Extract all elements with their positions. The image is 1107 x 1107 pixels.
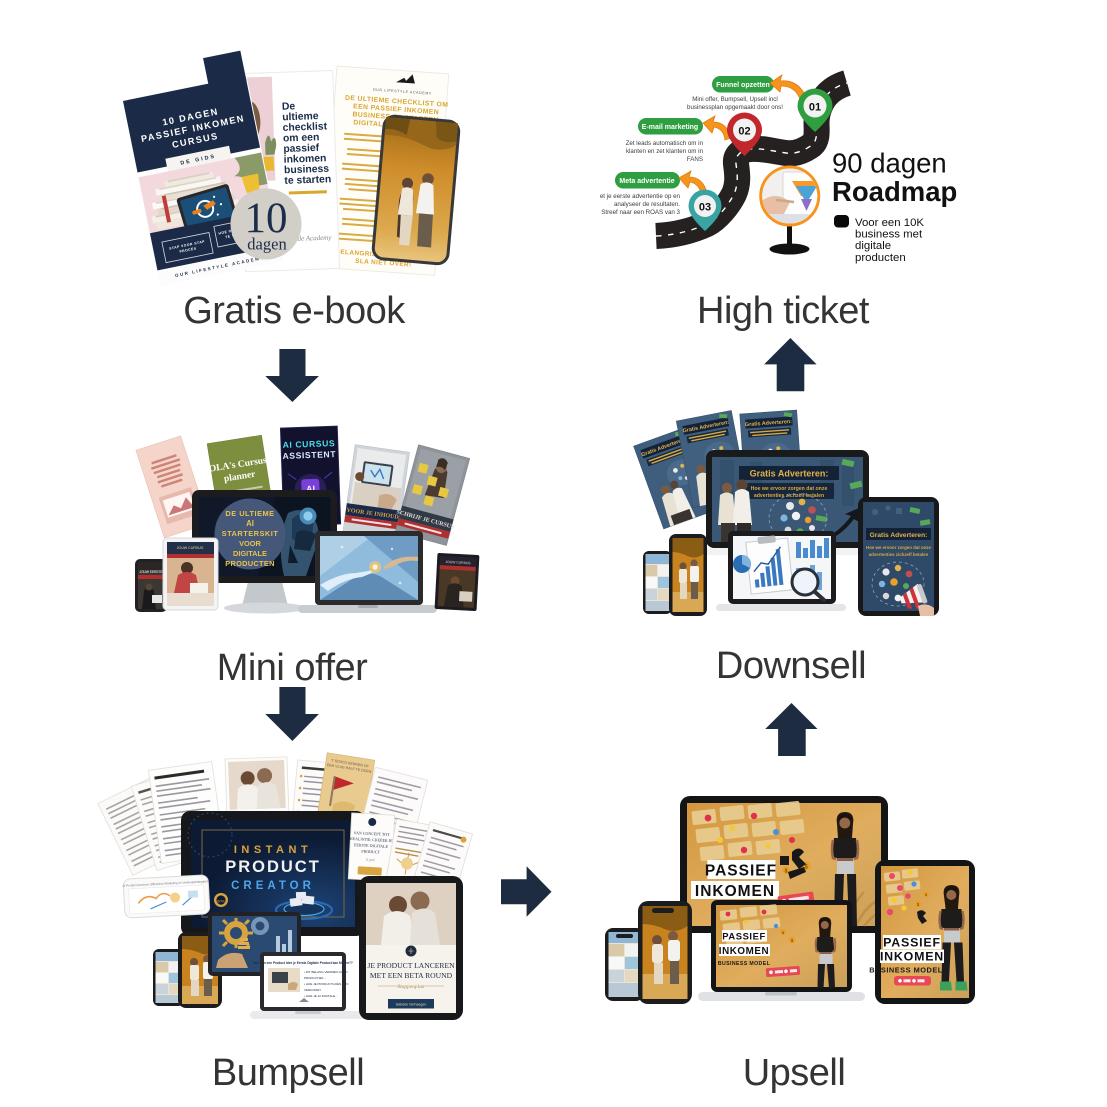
svg-text:digitale: digitale: [855, 240, 891, 252]
svg-text:Zet leads automatisch om in: Zet leads automatisch om in: [626, 140, 704, 147]
svg-text:Mini offer, Bumpsell, Upsell i: Mini offer, Bumpsell, Upsell incl: [692, 96, 778, 103]
svg-text:INKOMEN: INKOMEN: [880, 950, 944, 964]
svg-text:Streef naar een ROAS van 3: Streef naar een ROAS van 3: [601, 209, 680, 216]
svg-text:DE ULTIEME: DE ULTIEME: [225, 509, 274, 518]
svg-text:PRODUCT: PRODUCT: [361, 849, 380, 855]
svg-text:Roadmap: Roadmap: [832, 176, 957, 207]
svg-text:Hoe we ervoor zorgen dat onze: Hoe we ervoor zorgen dat onze: [866, 545, 931, 550]
svg-text:PRODUCT: PRODUCT: [225, 858, 321, 876]
svg-text:DIGITALE: DIGITALE: [233, 549, 267, 558]
svg-text:Hoe Van een Product Idee je Ee: Hoe Van een Product Idee je Eerste Digit…: [253, 961, 353, 965]
svg-text:klanten en zet klanten om in: klanten en zet klanten om in: [626, 148, 704, 155]
svg-text:businessplan opgemaakt door on: businessplan opgemaakt door ons!: [687, 104, 783, 111]
svg-text:Zet je eerste advertentie op e: Zet je eerste advertentie op en: [600, 193, 681, 200]
svg-text:ASSISTENT: ASSISTENT: [282, 449, 336, 461]
svg-text:• HOE JE PRODUCTGOËN KUN: • HOE JE PRODUCTGOËN KUN: [304, 982, 348, 986]
svg-text:PRODUCTIEF...: PRODUCTIEF...: [304, 976, 326, 980]
svg-text:• DIT BELANG VERDIEN GOED: • DIT BELANG VERDIEN GOED: [304, 970, 348, 974]
svg-text:03: 03: [699, 202, 711, 214]
svg-text:E-mail marketing: E-mail marketing: [642, 124, 698, 131]
svg-text:INKOMEN: INKOMEN: [719, 946, 769, 957]
svg-text:60%: 60%: [217, 899, 225, 904]
svg-text:• HOE JE 10 DIGITALE...: • HOE JE 10 DIGITALE...: [304, 994, 338, 998]
svg-text:te starten: te starten: [284, 174, 331, 187]
svg-text:producten: producten: [855, 252, 906, 264]
svg-text:Meta advertentie: Meta advertentie: [619, 178, 674, 185]
svg-text:Gratis Adverteren:: Gratis Adverteren:: [750, 469, 829, 479]
svg-text:MET EEN BETA ROUND: MET EEN BETA ROUND: [370, 971, 453, 980]
svg-text:$: $: [785, 869, 788, 875]
svg-text:JE PRODUCT LANCEREN: JE PRODUCT LANCEREN: [367, 961, 455, 970]
svg-text:CREATOR: CREATOR: [231, 880, 315, 892]
svg-text:PASSIEF: PASSIEF: [883, 936, 941, 950]
svg-text:business met: business met: [855, 229, 923, 241]
svg-text:Hoe we ervoor zorgen dat onze: Hoe we ervoor zorgen dat onze: [751, 486, 828, 492]
svg-text:FANS: FANS: [687, 156, 703, 163]
svg-text:5 juni: 5 juni: [366, 858, 375, 862]
svg-text:Gratis Adverteren:: Gratis Adverteren:: [870, 532, 928, 539]
svg-text:STARTERSKIT: STARTERSKIT: [222, 529, 279, 538]
svg-text:advertenties zichzelf betalen: advertenties zichzelf betalen: [869, 552, 929, 557]
svg-text:INKOMEN: INKOMEN: [695, 883, 775, 900]
svg-text:90 dagen: 90 dagen: [832, 148, 947, 179]
svg-text:de Academy: de Academy: [297, 234, 332, 243]
svg-text:Isabelle Verhaegen: Isabelle Verhaegen: [396, 1003, 427, 1007]
svg-text:dagen: dagen: [247, 235, 286, 254]
svg-text:Stappenplan: Stappenplan: [398, 984, 425, 990]
svg-text:VOOR: VOOR: [239, 539, 261, 548]
svg-text:BUSINESS MODEL: BUSINESS MODEL: [869, 966, 943, 975]
svg-text:PASSIEF: PASSIEF: [705, 863, 777, 880]
svg-text:AI: AI: [246, 519, 254, 528]
svg-text:analyseer de resultaten.: analyseer de resultaten.: [614, 201, 680, 208]
svg-text:BUSINESS MODEL: BUSINESS MODEL: [718, 961, 771, 967]
svg-text:PRODUCTEN: PRODUCTEN: [225, 559, 275, 568]
svg-text:INSTANT: INSTANT: [234, 844, 312, 856]
svg-text:02: 02: [738, 126, 750, 138]
svg-text:Voor een 10K: Voor een 10K: [855, 217, 924, 229]
svg-text:Funnel opzetten: Funnel opzetten: [716, 82, 770, 89]
svg-text:01: 01: [809, 102, 821, 114]
svg-text:JOUW EERSTE: JOUW EERSTE: [139, 570, 162, 574]
svg-text:AI CURSUS: AI CURSUS: [282, 438, 335, 450]
svg-text:PASSIEF: PASSIEF: [722, 931, 766, 942]
svg-text:VERKOPEN: VERKOPEN: [304, 988, 321, 992]
svg-text:JOUW CURSUS: JOUW CURSUS: [177, 546, 204, 550]
